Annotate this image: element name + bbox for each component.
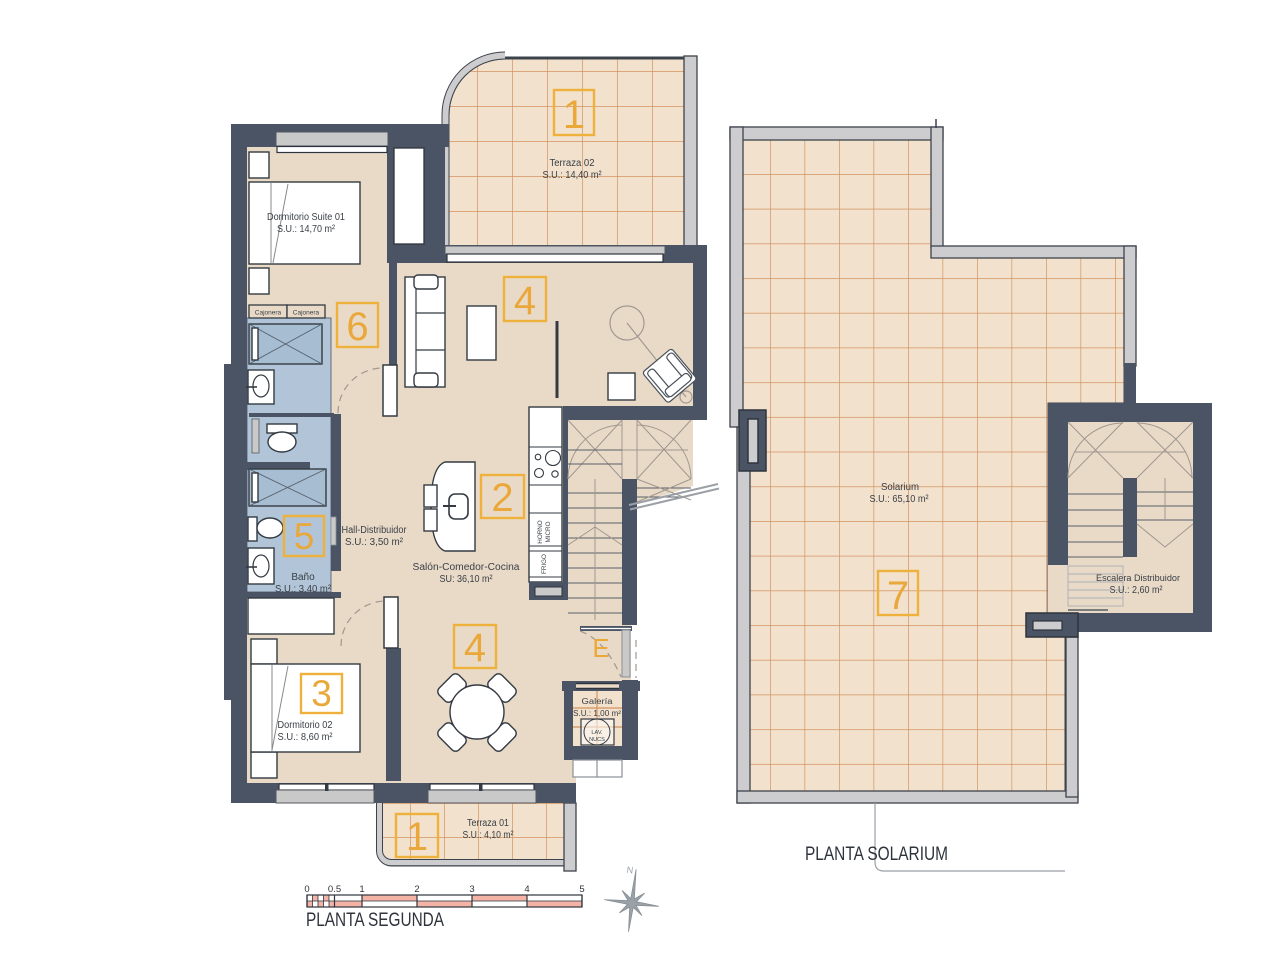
svg-text:Terraza 01: Terraza 01 xyxy=(467,818,509,829)
svg-text:S.U.: 4,10 m²: S.U.: 4,10 m² xyxy=(463,830,515,841)
svg-text:S.U.: 14,40 m²: S.U.: 14,40 m² xyxy=(543,170,603,181)
svg-text:1: 1 xyxy=(563,93,585,137)
svg-text:NUCS: NUCS xyxy=(589,737,605,743)
svg-text:S.U.: 65,10 m²: S.U.: 65,10 m² xyxy=(870,494,930,505)
svg-text:S.U.: 3,40 m²: S.U.: 3,40 m² xyxy=(275,584,332,595)
svg-text:S.U.: 8,60 m²: S.U.: 8,60 m² xyxy=(278,732,334,743)
svg-text:PLANTA SEGUNDA: PLANTA SEGUNDA xyxy=(306,910,444,931)
svg-text:S.U.: 14,70 m²: S.U.: 14,70 m² xyxy=(277,224,336,235)
svg-text:MICRO: MICRO xyxy=(545,521,552,542)
svg-text:Cajonera: Cajonera xyxy=(255,310,282,317)
svg-text:Hall-Distribuidor: Hall-Distribuidor xyxy=(342,525,408,536)
svg-text:FRIGO: FRIGO xyxy=(541,554,548,574)
svg-text:0.5: 0.5 xyxy=(328,884,341,895)
svg-text:Terraza 02: Terraza 02 xyxy=(550,158,595,169)
svg-text:3: 3 xyxy=(469,884,474,895)
svg-text:Solarium: Solarium xyxy=(881,482,919,493)
svg-text:3: 3 xyxy=(311,673,332,714)
svg-text:1: 1 xyxy=(406,815,428,859)
svg-text:7: 7 xyxy=(887,574,909,618)
svg-text:1: 1 xyxy=(359,884,364,895)
svg-text:Cajonera: Cajonera xyxy=(293,310,320,317)
svg-text:S.U.: 1,00 m²: S.U.: 1,00 m² xyxy=(573,709,621,718)
svg-text:4: 4 xyxy=(464,626,486,670)
svg-text:LAV.: LAV. xyxy=(591,730,603,736)
svg-text:0: 0 xyxy=(304,884,309,895)
svg-text:E: E xyxy=(592,633,609,663)
svg-text:Salón-Comedor-Cocina: Salón-Comedor-Cocina xyxy=(413,562,520,573)
svg-text:5: 5 xyxy=(579,884,584,895)
svg-text:Dormitorio 02: Dormitorio 02 xyxy=(278,720,333,731)
svg-text:Dormitorio Suite 01: Dormitorio Suite 01 xyxy=(267,212,345,223)
svg-text:Escalera Distribuidor: Escalera Distribuidor xyxy=(1096,573,1180,584)
svg-text:SU: 36,10 m²: SU: 36,10 m² xyxy=(440,574,494,585)
svg-text:PLANTA SOLARIUM: PLANTA SOLARIUM xyxy=(805,844,948,865)
svg-text:5: 5 xyxy=(294,516,315,557)
svg-text:Galería: Galería xyxy=(582,697,614,706)
svg-text:2: 2 xyxy=(414,884,419,895)
svg-text:6: 6 xyxy=(346,305,368,349)
svg-text:2: 2 xyxy=(491,476,513,520)
svg-text:4: 4 xyxy=(524,884,529,895)
svg-text:S.U.: 3,50 m²: S.U.: 3,50 m² xyxy=(345,537,404,548)
svg-text:S.U.: 2,60 m²: S.U.: 2,60 m² xyxy=(1110,585,1164,596)
svg-text:Baño: Baño xyxy=(291,572,315,583)
svg-text:HORNO: HORNO xyxy=(537,520,544,544)
svg-text:4: 4 xyxy=(514,279,536,323)
svg-text:N: N xyxy=(626,865,634,876)
